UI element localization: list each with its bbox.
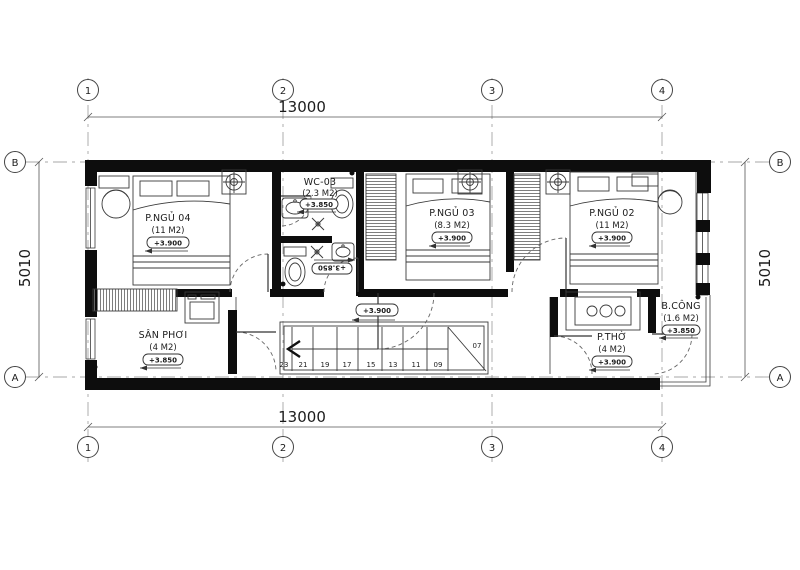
room-label-balcony: B.CÔNG (1.6 M2) +3.850 bbox=[659, 300, 701, 341]
room-label-bedroom4: P.NGỦ 04 (11 M2) +3.900 bbox=[145, 212, 191, 254]
level-tag: +3.900 bbox=[154, 240, 182, 248]
stair-step: 21 bbox=[299, 361, 308, 369]
grid-top-3: 3 bbox=[489, 86, 495, 97]
room-name: B.CÔNG bbox=[661, 300, 700, 312]
grid-left-a: A bbox=[12, 373, 19, 384]
room-area: (2.3 M2) bbox=[302, 189, 338, 199]
room-label-laundry: SÂN PHƠI (4 M2) +3.850 bbox=[139, 329, 188, 371]
level-tag: +3.900 bbox=[363, 307, 391, 315]
dim-bottom: 13000 bbox=[278, 408, 326, 426]
room-area: (4 M2) bbox=[149, 343, 176, 353]
stair-step: 11 bbox=[412, 361, 421, 369]
grid-top-2: 2 bbox=[280, 86, 286, 97]
stair-step: 09 bbox=[434, 361, 443, 369]
stair-step: 19 bbox=[321, 361, 330, 369]
grid-bottom-4: 4 bbox=[659, 443, 665, 454]
room-label-bedroom2: P.NGỦ 02 (11 M2) +3.900 bbox=[589, 207, 635, 249]
room-area: (1.6 M2) bbox=[663, 314, 699, 324]
grid-bottom-2: 2 bbox=[280, 443, 286, 454]
stair-step-top: 07 bbox=[473, 342, 482, 350]
grid-marker-labels: 1 2 3 4 1 2 3 4 B A B A bbox=[12, 86, 784, 454]
level-tag: +3.900 bbox=[598, 235, 626, 243]
room-label-bedroom3: P.NGỦ 03 (8.3 M2) +3.900 bbox=[429, 207, 475, 249]
level-tag: +3.900 bbox=[598, 359, 626, 367]
room-name: P.NGỦ 02 bbox=[589, 207, 634, 219]
hall-level-label: +3.900 bbox=[352, 304, 398, 323]
room-name: P.NGỦ 03 bbox=[429, 207, 474, 219]
level-tag: +3.850 bbox=[149, 357, 177, 365]
room-label-worship: P.THỜ (4 M2) +3.900 bbox=[589, 331, 632, 373]
level-tag: +3.850 bbox=[318, 264, 346, 272]
grid-lines bbox=[26, 78, 774, 462]
room-name: P.NGỦ 04 bbox=[145, 212, 190, 224]
grid-right-b: B bbox=[777, 158, 784, 169]
room-area: (11 M2) bbox=[596, 221, 629, 231]
room-name: WC-03 bbox=[304, 177, 337, 188]
floor-plan-canvas: 13000 13000 5010 5010 1 2 3 4 1 2 3 4 B … bbox=[0, 0, 800, 570]
room-area: (11 M2) bbox=[152, 226, 185, 236]
dim-right: 5010 bbox=[756, 249, 774, 287]
altar-table-icon bbox=[566, 292, 640, 330]
level-tag: +3.850 bbox=[667, 327, 695, 335]
ceiling-fan-icon bbox=[222, 170, 246, 194]
dim-left: 5010 bbox=[16, 249, 34, 287]
stair-step: 13 bbox=[389, 361, 398, 369]
stair-numbers: 23 21 19 17 15 13 11 09 07 bbox=[280, 342, 482, 369]
stair-step: 23 bbox=[280, 361, 289, 369]
room-name: P.THỜ bbox=[597, 331, 627, 343]
louvre-vent bbox=[93, 289, 177, 311]
level-tag: +3.850 bbox=[305, 201, 333, 209]
room-label-wc-lower: +3.850 bbox=[312, 258, 355, 275]
grid-markers bbox=[5, 80, 791, 458]
room-area: (8.3 M2) bbox=[434, 221, 470, 231]
grid-left-b: B bbox=[12, 158, 19, 169]
room-name: SÂN PHƠI bbox=[139, 329, 188, 341]
level-tag: +3.900 bbox=[438, 235, 466, 243]
ceiling-fan-icon bbox=[546, 170, 570, 194]
stair-step: 17 bbox=[343, 361, 352, 369]
room-label-wc: WC-03 (2.3 M2) +3.850 bbox=[297, 177, 338, 215]
grid-right-a: A bbox=[777, 373, 784, 384]
grid-top-1: 1 bbox=[85, 86, 91, 97]
floor-plan-drawing: 13000 13000 5010 5010 1 2 3 4 1 2 3 4 B … bbox=[0, 0, 800, 570]
grid-bottom-3: 3 bbox=[489, 443, 495, 454]
grid-bottom-1: 1 bbox=[85, 443, 91, 454]
stair-step: 15 bbox=[367, 361, 376, 369]
grid-top-4: 4 bbox=[659, 86, 665, 97]
room-area: (4 M2) bbox=[598, 345, 625, 355]
staircase bbox=[280, 322, 488, 374]
